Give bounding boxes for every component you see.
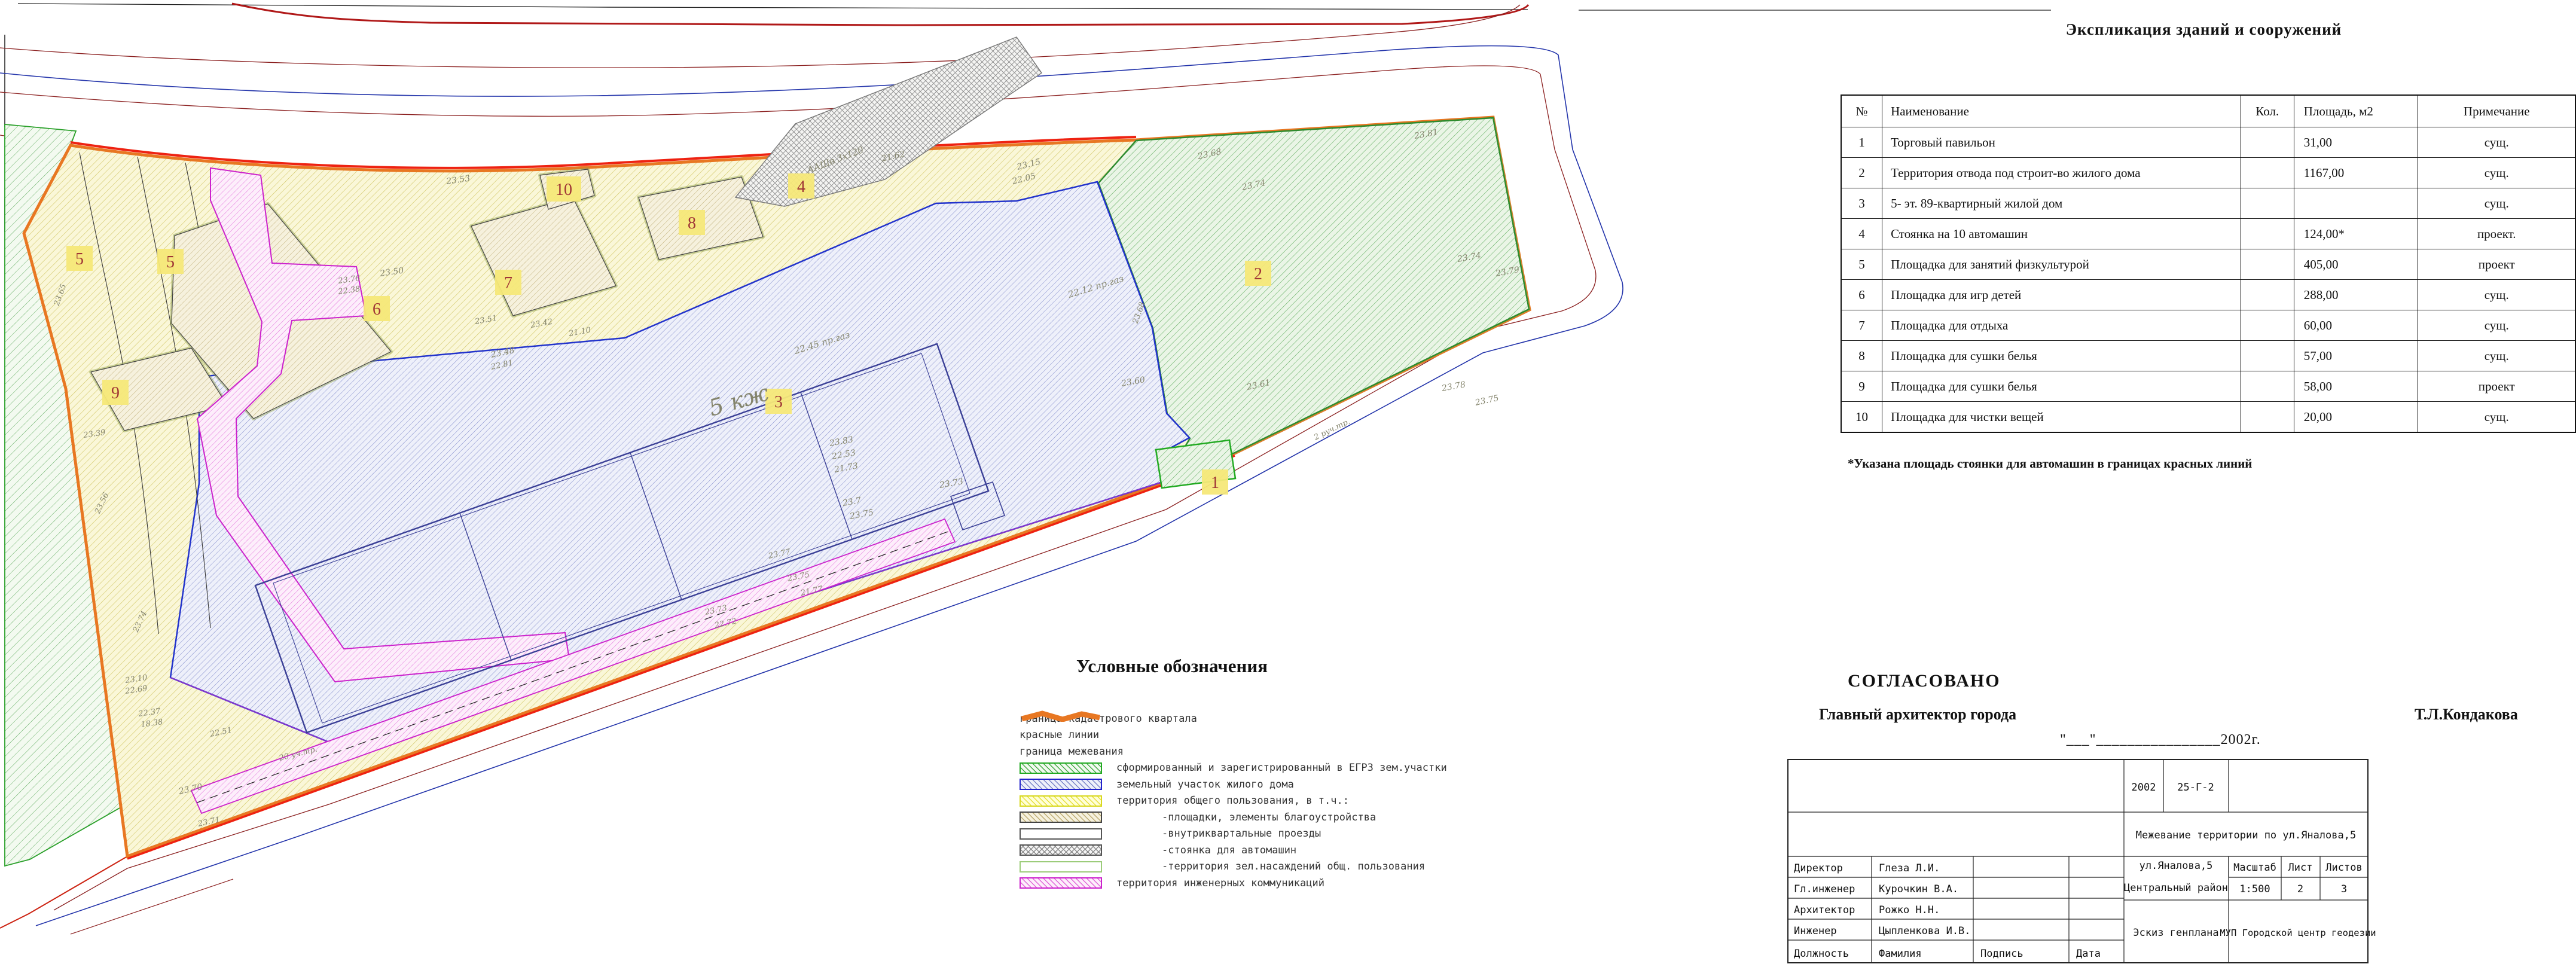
stamp-district: Центральный район [2124, 882, 2228, 894]
map-annotation: 23.75 [1474, 393, 1500, 408]
spec-table-row: 5Площадка для занятий физкультурой405,00… [1841, 249, 2575, 280]
spec-cell: 7 [1841, 310, 1882, 341]
spec-table-row: 9Площадка для сушки белья58,00проект [1841, 371, 2575, 402]
spec-cell: 9 [1841, 371, 1882, 402]
col-note: Примечание [2418, 95, 2575, 127]
spec-cell [2241, 249, 2294, 280]
spec-cell [2241, 158, 2294, 188]
stamp-sheet-label: Лист [2288, 862, 2313, 874]
stamp-name: Цыпленкова И.В. [1879, 925, 1971, 937]
legend-area-swatch [1020, 762, 1102, 774]
spec-cell: сущ. [2418, 127, 2575, 158]
stamp-role: Инженер [1794, 925, 1837, 937]
spec-cell: Торговый павильон [1882, 127, 2241, 158]
legend-area-swatch [1020, 828, 1102, 840]
stamp-scale-label: Масштаб [2233, 862, 2276, 874]
legend-area-swatch [1020, 861, 1102, 873]
spec-cell [2241, 341, 2294, 371]
spec-cell: 6 [1841, 280, 1882, 310]
legend-item-label: -площадки, элементы благоустройства [1116, 812, 1376, 823]
spec-cell: Площадка для сушки белья [1882, 341, 2241, 371]
spec-cell: 405,00 [2294, 249, 2418, 280]
stamp-footer-family: Фамилия [1879, 948, 1922, 960]
spec-cell [2241, 127, 2294, 158]
spec-cell: 57,00 [2294, 341, 2418, 371]
area-badge-number: 8 [688, 214, 696, 233]
legend-item-label: -внутриквартальные проезды [1116, 828, 1321, 840]
spec-cell: проект [2418, 371, 2575, 402]
map-annotation: 23.78 [1440, 380, 1466, 393]
col-qty: Кол. [2241, 95, 2294, 127]
stamp-name: Курочкин В.А. [1879, 883, 1958, 895]
spec-table-row: 8Площадка для сушки белья57,00сущ. [1841, 341, 2575, 371]
legend-area-swatch [1020, 812, 1102, 823]
area-badge-number: 10 [556, 181, 572, 199]
legend-title: Условные обозначения [1076, 655, 1268, 677]
legend-area-swatch [1020, 779, 1102, 790]
col-name: Наименование [1882, 95, 2241, 127]
spec-table-row: 2Территория отвода под строит-во жилого … [1841, 158, 2575, 188]
spec-table-row: 10Площадка для чистки вещей20,00сущ. [1841, 402, 2575, 433]
spec-cell: 4 [1841, 219, 1882, 249]
legend-item: -внутриквартальные проезды [1020, 826, 1447, 843]
spec-cell: Стоянка на 10 автомашин [1882, 219, 2241, 249]
stamp-role: Архитектор [1794, 904, 1855, 916]
legend-item: граница межевания [1020, 743, 1447, 760]
legend-item-label: -стоянка для автомашин [1116, 844, 1296, 856]
spec-table-title: Экспликация зданий и сооружений [1841, 20, 2567, 39]
area-badge-number: 4 [797, 178, 805, 196]
spec-cell: 3 [1841, 188, 1882, 219]
area-badge-number: 3 [774, 393, 783, 411]
area-badge-number: 2 [1254, 265, 1262, 283]
stamp-sheets: 3 [2341, 883, 2347, 895]
stamp-name: Рожко Н.Н. [1879, 904, 1940, 916]
legend-line-swatch [1020, 710, 1102, 722]
spec-cell: 288,00 [2294, 280, 2418, 310]
spec-cell: сущ. [2418, 310, 2575, 341]
map-annotation: 2 руч.тр. [1312, 417, 1351, 443]
spec-table-row: 6Площадка для игр детей288,00сущ. [1841, 280, 2575, 310]
stamp-footer-role: Должность [1794, 948, 1849, 960]
stamp-address: ул.Яналова,5 [2139, 860, 2213, 872]
legend-item: -территория зел.насаждений общ. пользова… [1020, 859, 1447, 875]
legend-item: красные линии [1020, 727, 1447, 744]
spec-cell [2241, 402, 2294, 433]
stamp-sheet: 2 [2297, 883, 2303, 895]
approval-date-line: "___"________________2002г. [2060, 732, 2261, 748]
spec-table-row: 7Площадка для отдыха60,00сущ. [1841, 310, 2575, 341]
spec-cell: 60,00 [2294, 310, 2418, 341]
spec-cell: 1167,00 [2294, 158, 2418, 188]
stamp-scale: 1:500 [2239, 883, 2270, 895]
stamp-footer-date: Дата [2076, 948, 2101, 960]
spec-table-row: 35- эт. 89-квартирный жилой домсущ. [1841, 188, 2575, 219]
red-line-street [232, 4, 1528, 25]
spec-cell: 2 [1841, 158, 1882, 188]
spec-cell: Площадка для занятий физкультурой [1882, 249, 2241, 280]
stamp-role: Гл.инженер [1794, 883, 1855, 895]
spec-cell: сущ. [2418, 402, 2575, 433]
spec-cell [2241, 371, 2294, 402]
spec-table-row: 4Стоянка на 10 автомашин124,00*проект. [1841, 219, 2575, 249]
legend-item-label: сформированный и зарегистрированный в ЕГ… [1116, 762, 1447, 774]
spec-cell: проект [2418, 249, 2575, 280]
spec-cell: сущ. [2418, 158, 2575, 188]
spec-cell: Площадка для игр детей [1882, 280, 2241, 310]
legend-item-label: территория общего пользования, в т.ч.: [1116, 795, 1349, 807]
legend-item: сформированный и зарегистрированный в ЕГ… [1020, 760, 1447, 777]
legend-item: -стоянка для автомашин [1020, 842, 1447, 859]
spec-cell: 8 [1841, 341, 1882, 371]
spec-cell: сущ. [2418, 188, 2575, 219]
spec-cell [2241, 310, 2294, 341]
spec-cell: 1 [1841, 127, 1882, 158]
spec-cell: Площадка для сушки белья [1882, 371, 2241, 402]
page: 123455678910 23.5323.5023.7622.3823.5123… [0, 0, 2576, 964]
stamp-org: МУП Городской центр геодезии [2220, 928, 2376, 938]
legend-item-label: граница межевания [1020, 746, 1124, 758]
spec-cell: 5 [1841, 249, 1882, 280]
spec-table: № Наименование Кол. Площадь, м2 Примечан… [1841, 94, 2576, 433]
spec-table-body: 1Торговый павильон31,00сущ.2Территория о… [1841, 127, 2575, 433]
legend-item-label: территория инженерных коммуникаций [1116, 877, 1324, 889]
area-badge-number: 1 [1211, 474, 1219, 492]
spec-cell: 124,00* [2294, 219, 2418, 249]
col-number: № [1841, 95, 1882, 127]
spec-cell: сущ. [2418, 341, 2575, 371]
spec-table-footnote: *Указана площадь стоянки для автомашин в… [1848, 456, 2553, 471]
col-area: Площадь, м2 [2294, 95, 2418, 127]
legend-area-swatch [1020, 795, 1102, 807]
legend-item: -площадки, элементы благоустройства [1020, 809, 1447, 826]
spec-cell [2241, 188, 2294, 219]
area-badge-number: 5 [75, 250, 84, 269]
approver-name: Т.Л.Кондакова [2415, 706, 2518, 724]
legend-item: территория общего пользования, в т.ч.: [1020, 793, 1447, 810]
stamp-doc-title: Межевание территории по ул.Яналова,5 [2136, 829, 2356, 841]
legend-items: граница кадастрового кварталакрасные лин… [1020, 710, 1447, 892]
spec-cell: Территория отвода под строит-во жилого д… [1882, 158, 2241, 188]
spec-cell: 10 [1841, 402, 1882, 433]
legend-item: земельный участок жилого дома [1020, 776, 1447, 793]
stamp-name: Глеза Л.И. [1879, 862, 1940, 874]
spec-cell [2241, 219, 2294, 249]
legend-item-label: -территория зел.насаждений общ. пользова… [1116, 861, 1425, 873]
spec-cell: 5- эт. 89-квартирный жилой дом [1882, 188, 2241, 219]
stamp-year: 2002 [2132, 782, 2156, 794]
stamp-code: 25-Г-2 [2177, 782, 2214, 794]
spec-cell [2294, 188, 2418, 219]
stamp-doc-type: Эскиз генплана [2133, 927, 2218, 939]
spec-cell: 31,00 [2294, 127, 2418, 158]
legend-item-label: красные линии [1020, 729, 1099, 741]
spec-cell: 58,00 [2294, 371, 2418, 402]
stamp-role: Директор [1794, 862, 1843, 874]
area-badge-number: 9 [111, 384, 120, 402]
approval-stamp-word: СОГЛАСОВАНО [1848, 671, 2001, 691]
legend-item: территория инженерных коммуникаций [1020, 875, 1447, 892]
spec-table-row: 1Торговый павильон31,00сущ. [1841, 127, 2575, 158]
area-badge-number: 5 [166, 253, 175, 271]
stamp-sheets-label: Листов [2325, 862, 2362, 874]
spec-cell: Площадка для отдыха [1882, 310, 2241, 341]
spec-cell: Площадка для чистки вещей [1882, 402, 2241, 433]
spec-cell: сущ. [2418, 280, 2575, 310]
spec-cell [2241, 280, 2294, 310]
area-badge-number: 7 [504, 274, 512, 292]
legend-area-swatch [1020, 844, 1102, 856]
legend-item-label: земельный участок жилого дома [1116, 779, 1294, 791]
stamp-footer-sign: Подпись [1980, 948, 2023, 960]
spec-cell: проект. [2418, 219, 2575, 249]
legend-area-swatch [1020, 877, 1102, 889]
spec-table-header: № Наименование Кол. Площадь, м2 Примечан… [1841, 95, 2575, 127]
spec-cell: 20,00 [2294, 402, 2418, 433]
title-block-text: 2002 25-Г-2 Межевание территории по ул.Я… [1794, 782, 2376, 960]
area-badge-number: 6 [373, 300, 381, 319]
approver-role: Главный архитектор города [1819, 706, 2016, 724]
